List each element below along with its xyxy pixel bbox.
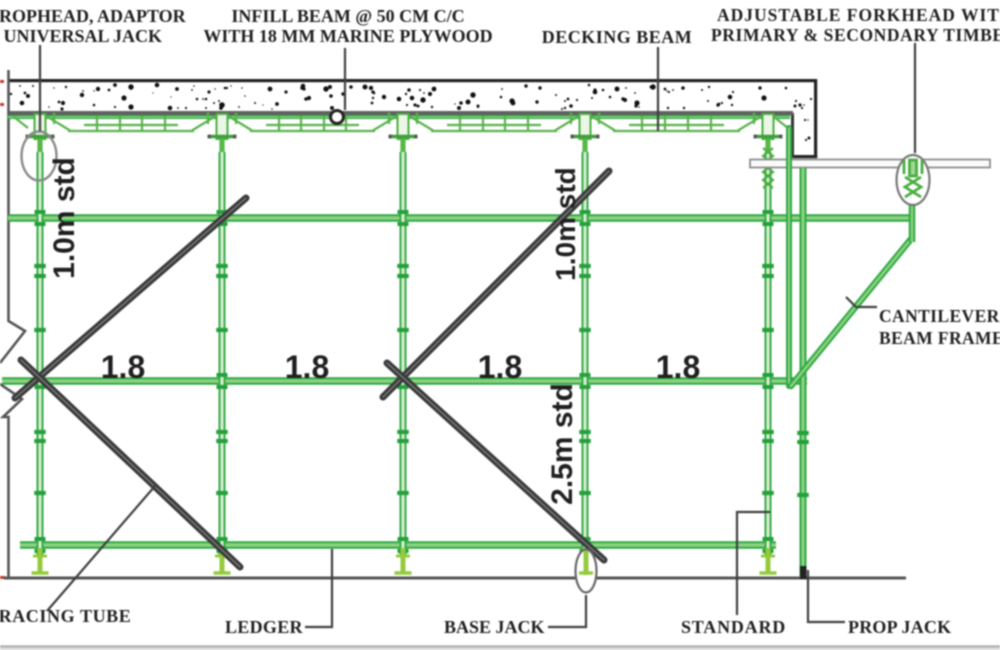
svg-text:1.8: 1.8 xyxy=(656,349,700,385)
svg-text:WITH 18 MM MARINE PLYWOOD: WITH 18 MM MARINE PLYWOOD xyxy=(203,26,492,46)
svg-text:CANTILEVER: CANTILEVER xyxy=(879,306,1000,326)
svg-text:DROPHEAD, ADAPTOR: DROPHEAD, ADAPTOR xyxy=(0,6,187,26)
svg-text:1.8: 1.8 xyxy=(285,349,329,385)
svg-text:PROP JACK: PROP JACK xyxy=(848,617,951,637)
svg-text:1.8: 1.8 xyxy=(478,349,522,385)
svg-text:BASE JACK: BASE JACK xyxy=(444,617,545,637)
svg-text:BRACING TUBE: BRACING TUBE xyxy=(0,606,131,626)
svg-text:ADJUSTABLE FORKHEAD WITH: ADJUSTABLE FORKHEAD WITH xyxy=(717,5,1000,25)
svg-text:BEAM FRAME: BEAM FRAME xyxy=(879,328,1000,348)
svg-text:1.0m std: 1.0m std xyxy=(550,167,581,281)
svg-text:2.5m std: 2.5m std xyxy=(546,383,579,505)
svg-text:DECKING BEAM: DECKING BEAM xyxy=(542,27,693,47)
svg-text:& UNIVERSAL JACK: & UNIVERSAL JACK xyxy=(0,26,162,46)
svg-text:STANDARD: STANDARD xyxy=(681,617,786,637)
svg-text:1.0m std: 1.0m std xyxy=(48,157,81,279)
svg-text:INFILL BEAM @ 50 CM C/C: INFILL BEAM @ 50 CM C/C xyxy=(231,6,464,26)
svg-text:LEDGER: LEDGER xyxy=(225,617,304,637)
svg-text:1.8: 1.8 xyxy=(101,349,145,385)
svg-text:PRIMARY & SECONDARY TIMBER: PRIMARY & SECONDARY TIMBER xyxy=(711,25,1000,45)
